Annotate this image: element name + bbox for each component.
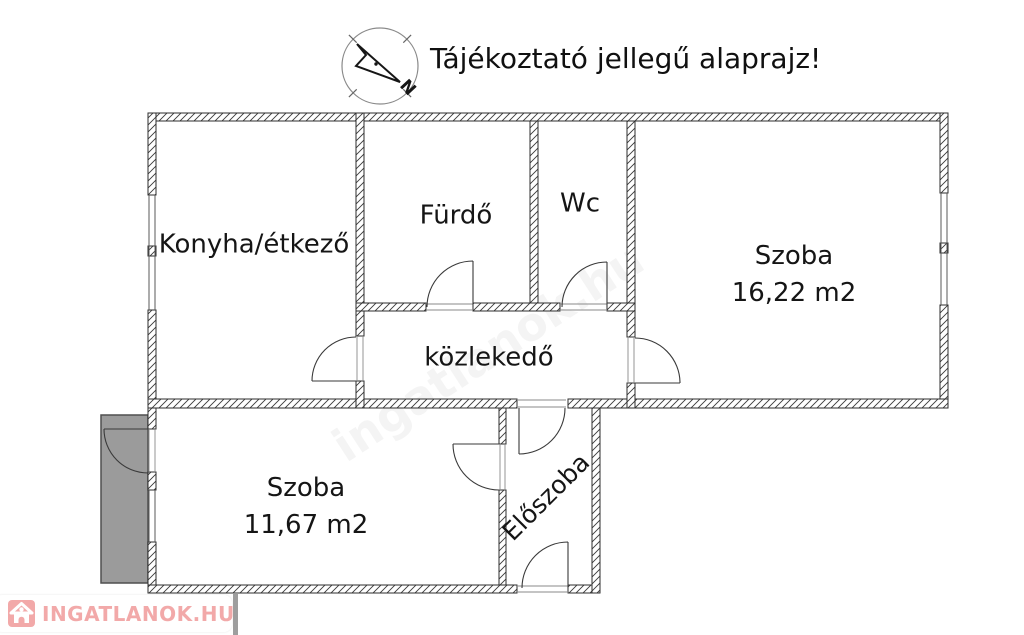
large-room-door <box>635 338 680 383</box>
small-room-area: 11,67 m2 <box>244 507 369 544</box>
watermark-divider <box>233 594 238 635</box>
room-label-bathroom: Fürdő <box>420 198 493 235</box>
entry-door <box>522 542 568 588</box>
watermark-brand-text: INGATLANOK.HU <box>42 602 235 626</box>
room-label-kitchen: Konyha/étkező <box>159 227 350 264</box>
watermark-logo: INGATLANOK.HU <box>0 595 232 632</box>
ingatlanok-house-icon <box>8 600 35 627</box>
room-label-large-room: Szoba 16,22 m2 <box>732 238 857 312</box>
large-room-area: 16,22 m2 <box>732 275 857 312</box>
door-sills-layer <box>149 304 634 592</box>
wc-door <box>562 262 607 307</box>
compass-icon: N <box>342 28 420 104</box>
room-label-small-room: Szoba 11,67 m2 <box>244 470 369 544</box>
room-label-wc: Wc <box>560 186 600 223</box>
small-room-name: Szoba <box>244 470 369 507</box>
bathroom-door <box>427 261 473 307</box>
large-room-name: Szoba <box>732 238 857 275</box>
kitchen-door <box>312 337 356 381</box>
balcony <box>101 415 148 583</box>
room-label-hallway: közlekedő <box>424 340 553 377</box>
hallway-entrance-door <box>519 408 565 454</box>
floor-plan-page: ingatlanok.hu <box>0 0 1024 635</box>
small-room-door <box>453 444 499 490</box>
compass-needle <box>356 44 400 82</box>
page-title: Tájékoztató jellegű alaprajz! <box>430 42 821 75</box>
